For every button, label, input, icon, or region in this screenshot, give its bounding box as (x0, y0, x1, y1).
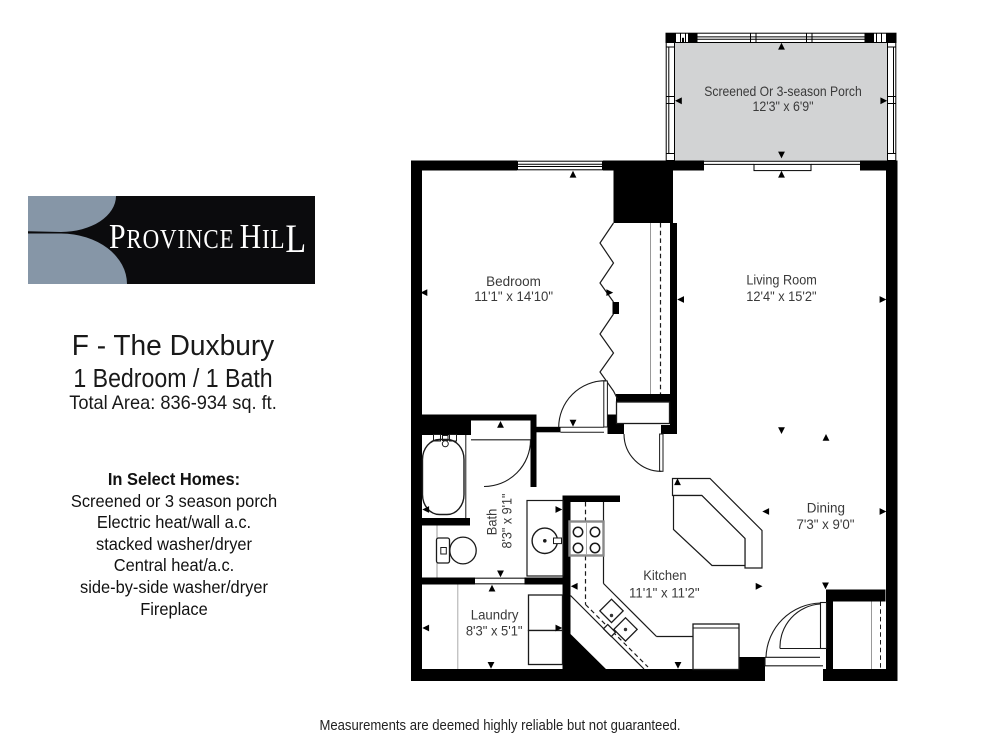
svg-text:12'3" x 6'9": 12'3" x 6'9" (753, 98, 814, 114)
svg-text:8'3" x 5'1": 8'3" x 5'1" (466, 622, 523, 638)
svg-text:Bath: Bath (483, 509, 499, 536)
svg-text:7'3" x 9'0": 7'3" x 9'0" (797, 516, 855, 532)
svg-text:11'1" x 11'2": 11'1" x 11'2" (629, 584, 700, 600)
svg-text:12'4" x 15'2": 12'4" x 15'2" (746, 288, 816, 304)
svg-text:8'3" x 9'1": 8'3" x 9'1" (499, 493, 515, 548)
svg-text:Kitchen: Kitchen (643, 567, 686, 583)
svg-text:Bedroom: Bedroom (486, 273, 541, 289)
svg-text:11'1" x 14'10": 11'1" x 14'10" (474, 288, 553, 304)
svg-text:Dining: Dining (807, 500, 845, 516)
svg-text:Screened Or 3-season Porch: Screened Or 3-season Porch (704, 83, 862, 99)
svg-text:Living Room: Living Room (746, 272, 817, 288)
svg-text:Laundry: Laundry (471, 607, 519, 623)
